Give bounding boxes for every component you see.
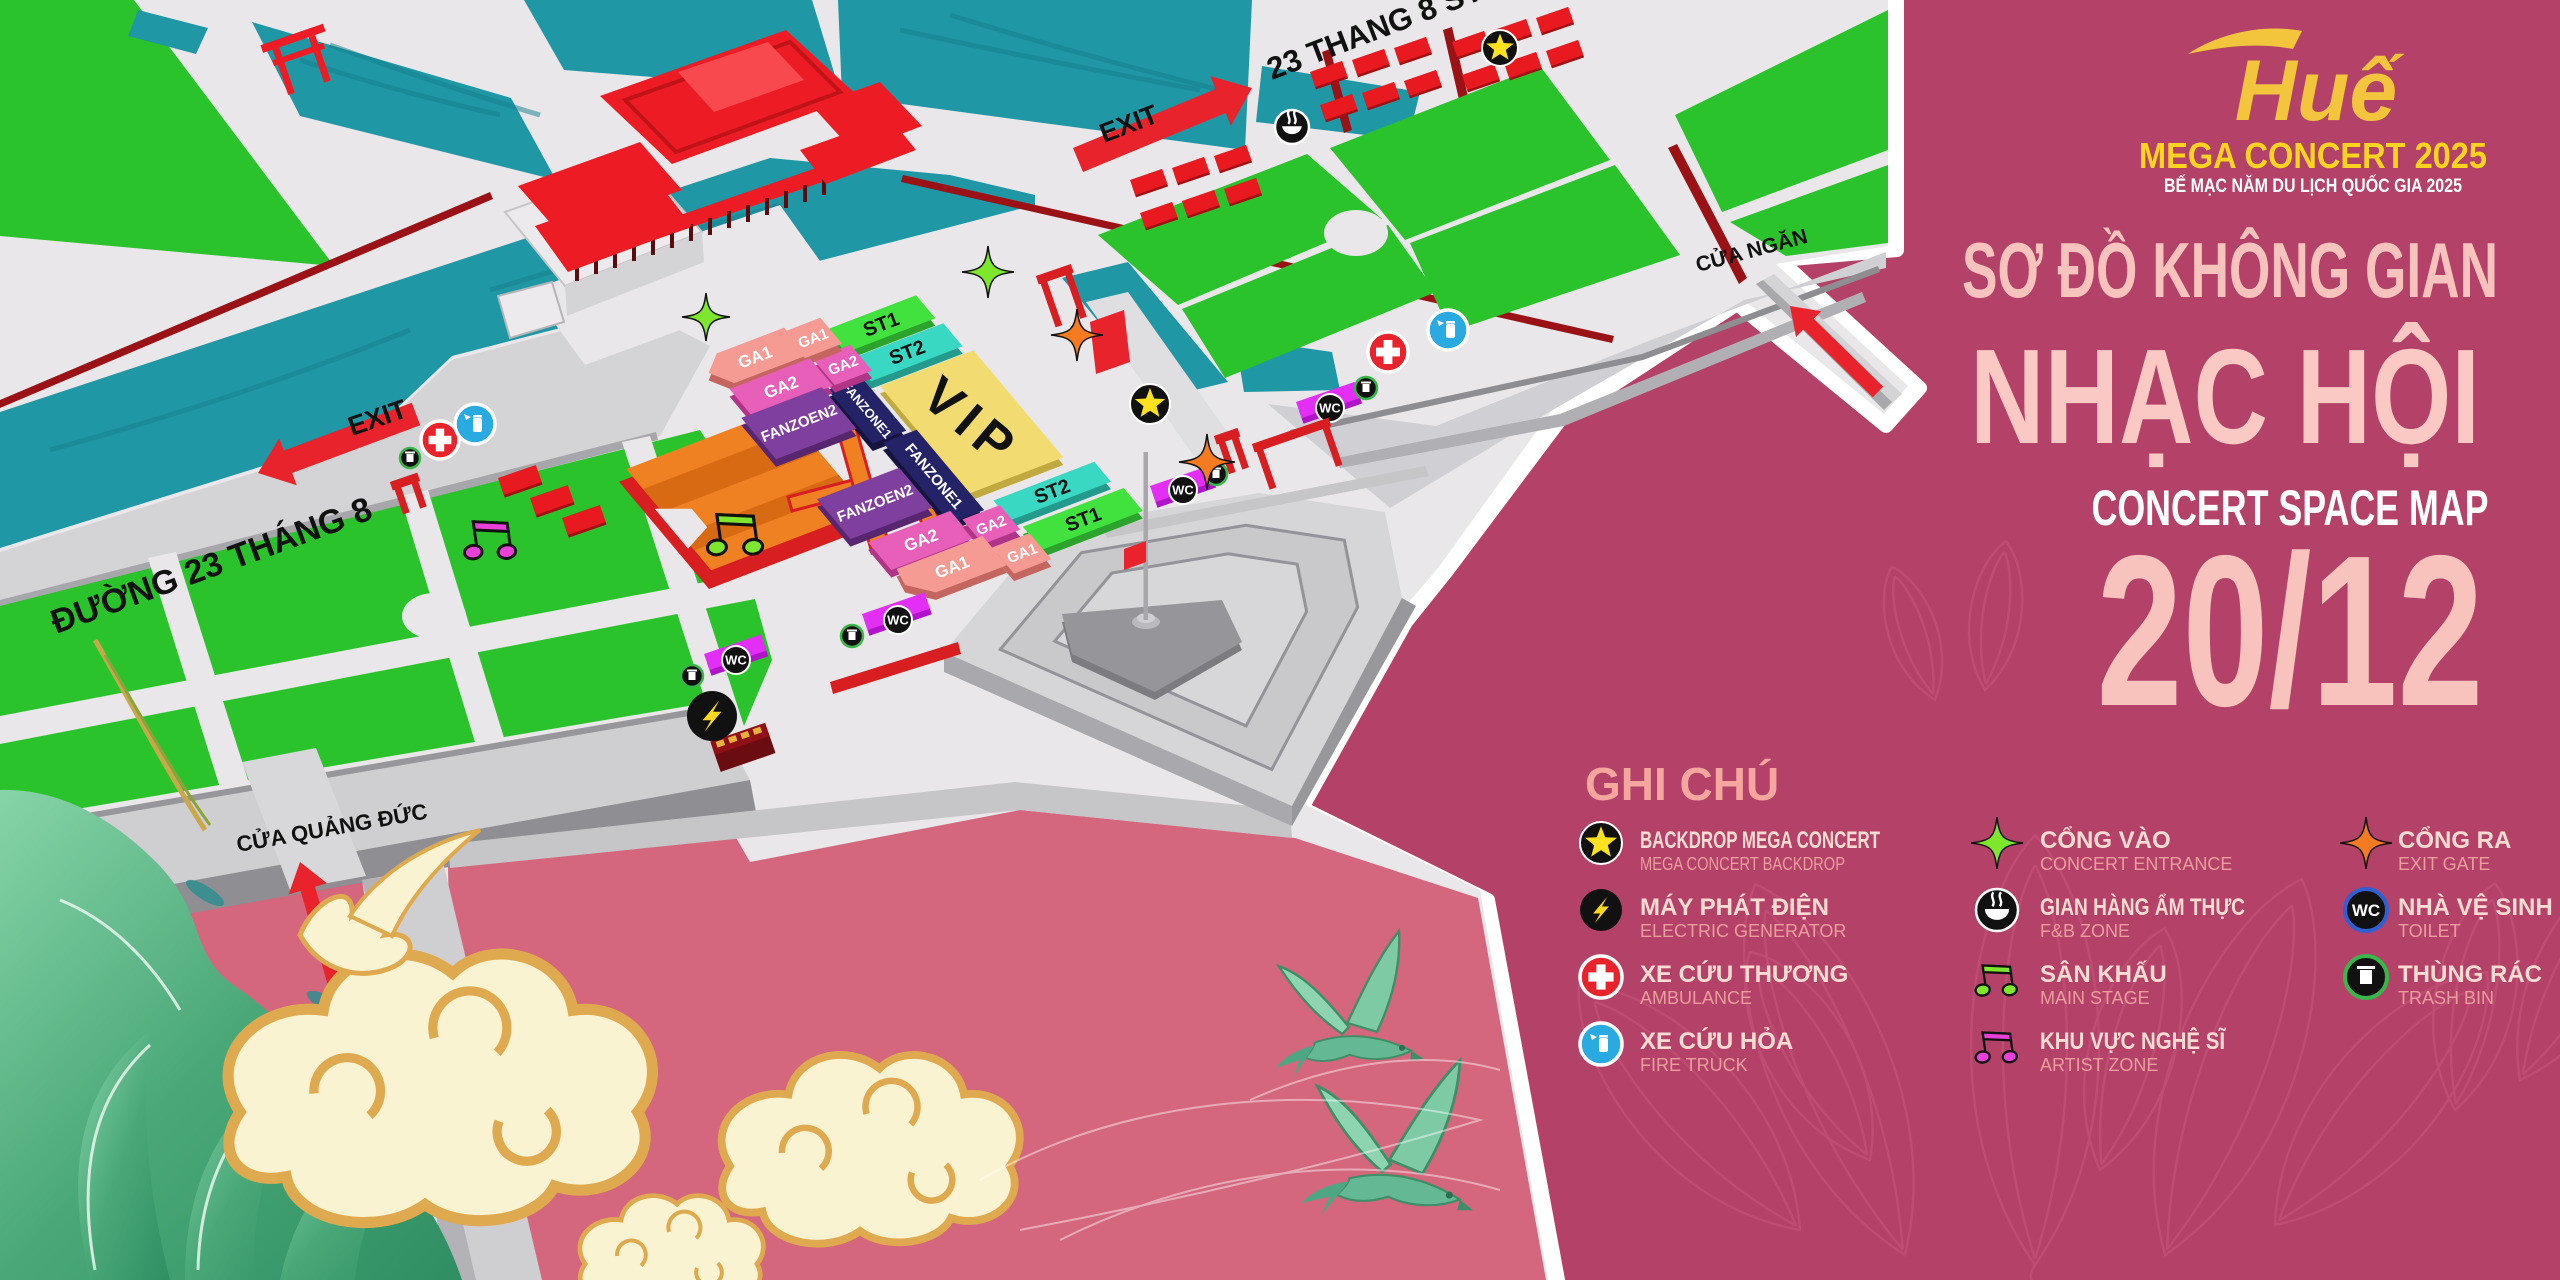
svg-text:TRASH BIN: TRASH BIN <box>2398 988 2494 1008</box>
svg-text:BẾ MẠC NĂM DU LỊCH QUỐC GIA 20: BẾ MẠC NĂM DU LỊCH QUỐC GIA 2025 <box>2164 175 2462 197</box>
svg-text:WC: WC <box>1319 401 1341 416</box>
svg-text:SÂN KHẤU: SÂN KHẤU <box>2040 960 2167 988</box>
svg-text:WC: WC <box>1172 483 1194 498</box>
svg-text:GIAN HÀNG ẨM THỰC: GIAN HÀNG ẨM THỰC <box>2040 893 2245 921</box>
svg-text:ELECTRIC GENERATOR: ELECTRIC GENERATOR <box>1640 921 1846 941</box>
svg-text:TOILET: TOILET <box>2398 921 2461 941</box>
svg-text:MÁY PHÁT ĐIỆN: MÁY PHÁT ĐIỆN <box>1640 893 1829 921</box>
svg-text:CỔNG RA: CỔNG RA <box>2398 826 2511 854</box>
svg-text:NHÀ VỆ SINH: NHÀ VỆ SINH <box>2398 893 2553 921</box>
svg-text:GHI CHÚ: GHI CHÚ <box>1585 758 1779 810</box>
svg-text:AMBULANCE: AMBULANCE <box>1640 988 1752 1008</box>
svg-text:MEGA CONCERT BACKDROP: MEGA CONCERT BACKDROP <box>1640 854 1845 874</box>
svg-text:KHU VỰC NGHỆ SĨ: KHU VỰC NGHỆ SĨ <box>2040 1027 2226 1055</box>
svg-text:FIRE TRUCK: FIRE TRUCK <box>1640 1055 1748 1075</box>
svg-text:F&B ZONE: F&B ZONE <box>2040 921 2130 941</box>
svg-text:CỔNG VÀO: CỔNG VÀO <box>2040 826 2171 854</box>
svg-text:WC: WC <box>725 653 747 668</box>
svg-text:THÙNG RÁC: THÙNG RÁC <box>2398 960 2542 988</box>
svg-text:XE CỨU THƯƠNG: XE CỨU THƯƠNG <box>1640 960 1848 988</box>
svg-text:20/12: 20/12 <box>2097 510 2484 751</box>
svg-text:CONCERT ENTRANCE: CONCERT ENTRANCE <box>2040 854 2232 874</box>
svg-text:WC: WC <box>887 613 909 628</box>
svg-text:MAIN STAGE: MAIN STAGE <box>2040 988 2150 1008</box>
svg-text:EXIT GATE: EXIT GATE <box>2398 854 2490 874</box>
svg-text:Huế: Huế <box>2235 43 2405 139</box>
svg-text:ARTIST ZONE: ARTIST ZONE <box>2040 1055 2158 1075</box>
svg-text:NHẠC HỘI: NHẠC HỘI <box>1970 321 2480 472</box>
svg-text:XE CỨU HỎA: XE CỨU HỎA <box>1640 1026 1793 1055</box>
svg-text:MEGA CONCERT 2025: MEGA CONCERT 2025 <box>2139 135 2487 176</box>
svg-text:SƠ ĐỒ KHÔNG GIAN: SƠ ĐỒ KHÔNG GIAN <box>1962 226 2498 314</box>
svg-text:WC: WC <box>2352 901 2380 920</box>
svg-text:BACKDROP MEGA CONCERT: BACKDROP MEGA CONCERT <box>1640 827 1880 854</box>
